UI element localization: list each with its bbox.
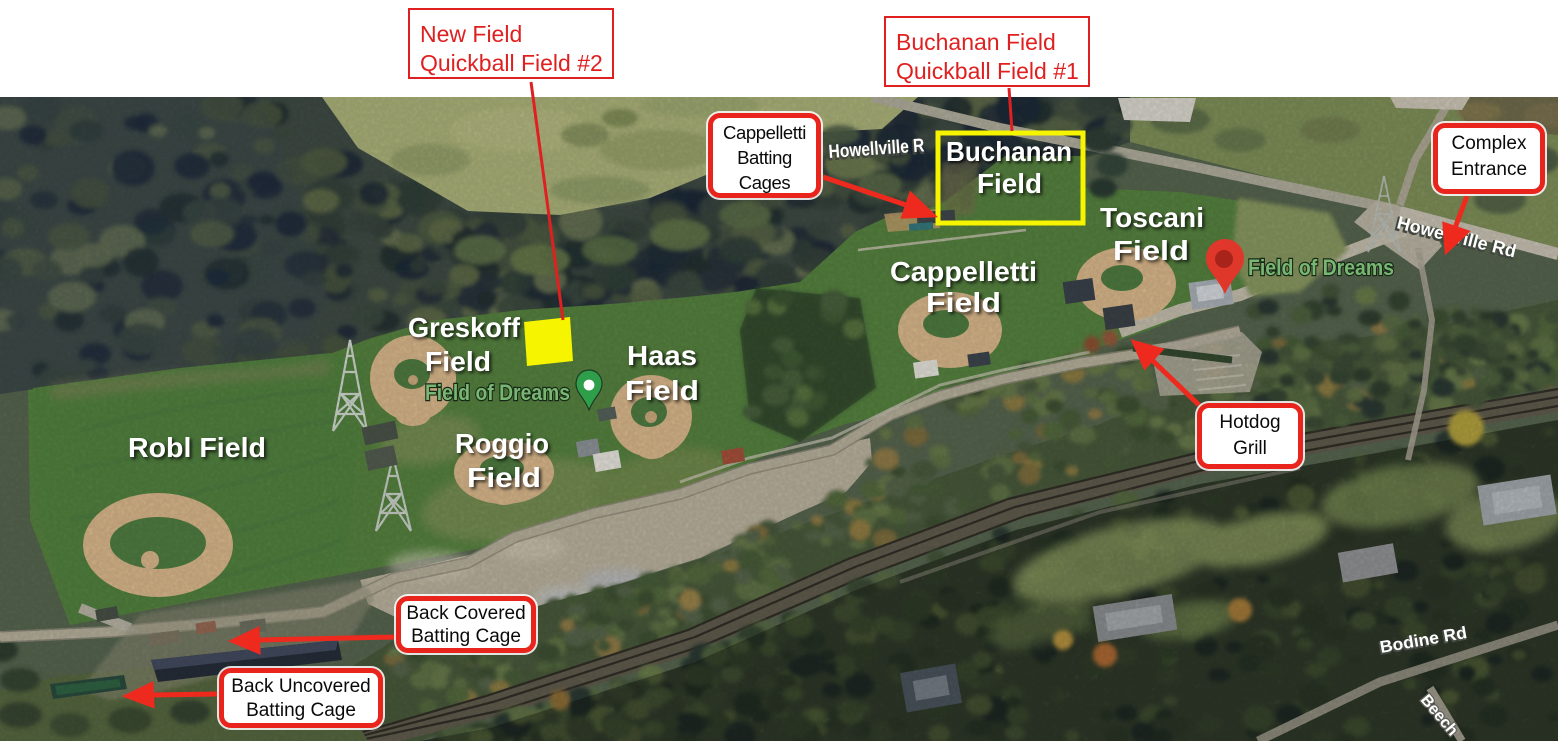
svg-text:Toscani: Toscani: [1100, 202, 1204, 233]
svg-text:Field: Field: [425, 346, 491, 377]
svg-text:Field of Dreams: Field of Dreams: [425, 380, 570, 405]
svg-text:Haas: Haas: [627, 340, 697, 371]
svg-text:Cappelletti: Cappelletti: [890, 256, 1037, 287]
svg-text:Buchanan: Buchanan: [946, 136, 1072, 167]
svg-text:Field of Dreams: Field of Dreams: [1248, 255, 1394, 280]
svg-text:Field: Field: [1113, 235, 1189, 266]
svg-text:Field: Field: [625, 375, 699, 406]
svg-text:Roggio: Roggio: [455, 428, 549, 459]
svg-text:Robl Field: Robl Field: [128, 432, 266, 463]
svg-text:Field: Field: [926, 287, 1001, 318]
svg-text:Field: Field: [977, 168, 1042, 199]
svg-text:Field: Field: [467, 462, 541, 493]
svg-text:Greskoff: Greskoff: [408, 312, 521, 343]
